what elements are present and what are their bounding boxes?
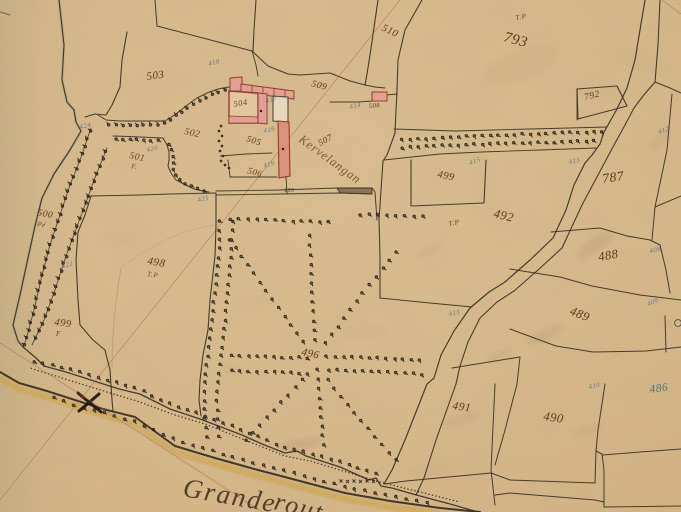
svg-text:T.P: T.P <box>147 270 159 279</box>
svg-text:490: 490 <box>543 409 565 426</box>
svg-text:508: 508 <box>369 102 381 110</box>
svg-text:F: F <box>55 330 61 338</box>
svg-text:F.: F. <box>130 162 138 171</box>
svg-text:195: 195 <box>284 188 295 194</box>
svg-text:787: 787 <box>601 168 625 186</box>
svg-text:503: 503 <box>146 69 165 83</box>
svg-text:Pé: Pé <box>36 220 47 230</box>
